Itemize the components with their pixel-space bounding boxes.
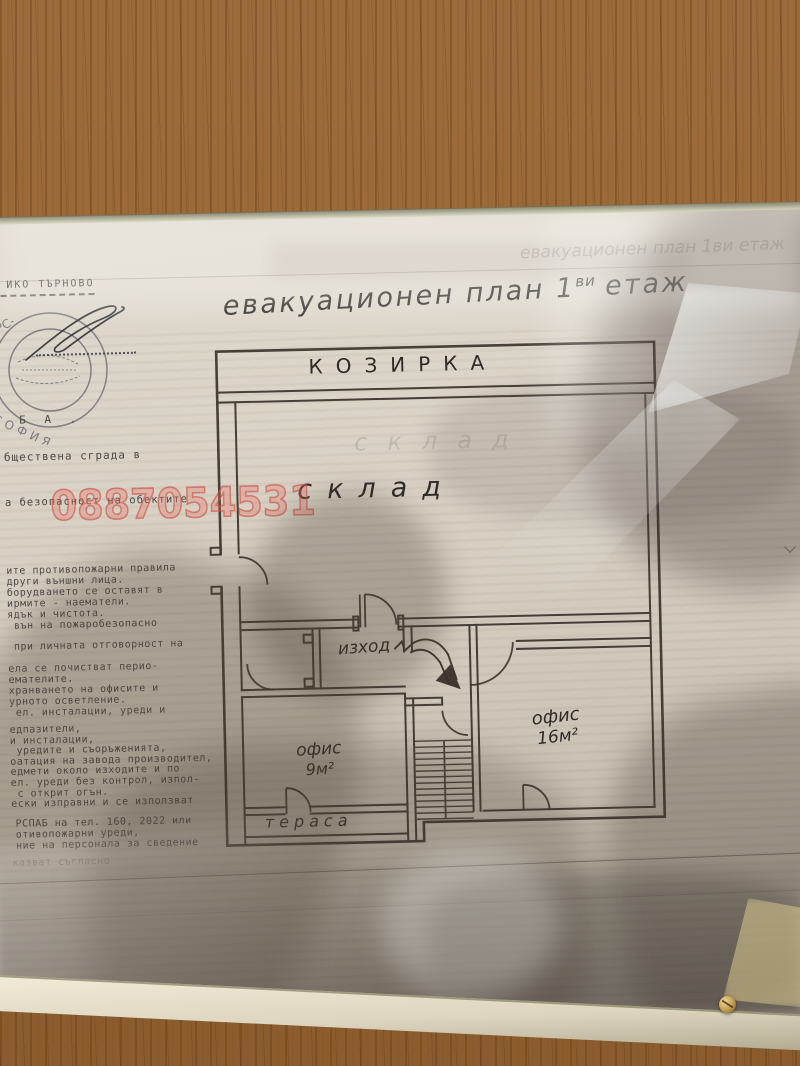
document-sheet: ИКО ТЪРНОВО Б А . бществена сграда в а б… (0, 0, 800, 1066)
stamp-city-text: СОФИЯ (0, 412, 56, 445)
rules-group-bottom: РСПАБ на тел. 160, 2022 илиотивопожарни … (15, 815, 198, 852)
rules-group-mid: ела се почистват перио-емателите.хранван… (8, 661, 166, 719)
rules-group-top: ите противопожарни правиладруги външни л… (6, 562, 177, 632)
room-label-canopy: КОЗИРКА (308, 350, 497, 378)
room-label-terrace: тераса (265, 811, 353, 832)
exit-label: изход (337, 635, 391, 659)
staircase (415, 740, 474, 819)
room-label-office-small: офис 9м² (272, 737, 366, 781)
signature-stroke (18, 296, 158, 376)
typewriter-line: ел. инсталации, уреди и (9, 705, 166, 719)
stamp-code-text: РС- (0, 314, 17, 336)
screw-slot (721, 1000, 733, 1009)
room-label-warehouse-ghost: склад (354, 425, 529, 457)
floor-plan: КОЗИРКА склад склад изход офис 9м² офис … (202, 336, 674, 861)
typewriter-line: вън на пожаробезопасно (7, 617, 177, 632)
screw-head (719, 996, 736, 1013)
title-superscript: ви (575, 271, 597, 290)
faint-bottom-line: казват съгласно (12, 856, 110, 869)
rules-group-lower: едпазители,и инсталации, уредите и съоръ… (10, 722, 214, 811)
signature (18, 296, 158, 376)
typewriter-line: ески изправни и се използват (11, 796, 213, 811)
room-label-warehouse: склад (297, 471, 456, 506)
plan-title: евакуационен план 1виетаж (222, 268, 663, 322)
title-tail: етаж (604, 267, 689, 302)
title-ghost-copy: евакуационен план 1ви етаж (520, 233, 800, 263)
responsibility-line: при личната отговорност на (14, 638, 184, 653)
header-city-line: ИКО ТЪРНОВО (6, 278, 94, 291)
floor-plan-svg (202, 336, 674, 861)
building-line: бществена сграда в (4, 448, 141, 464)
watermark-phone: 0887054531 (50, 476, 316, 530)
wood-wall: { "watermark": { "phone": "0887054531", … (0, 0, 800, 1066)
title-main: евакуационен план 1 (222, 273, 576, 322)
